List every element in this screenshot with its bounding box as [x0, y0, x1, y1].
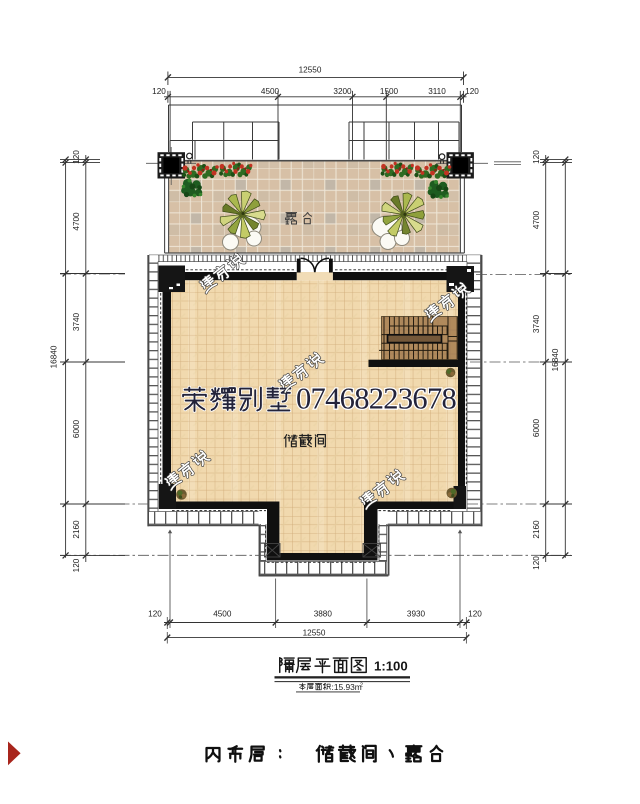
svg-text:3740: 3740: [532, 314, 541, 333]
svg-text:3200: 3200: [333, 87, 352, 96]
svg-text:2160: 2160: [532, 520, 541, 539]
svg-text:6000: 6000: [532, 418, 541, 437]
svg-text:120: 120: [468, 610, 482, 619]
svg-text:12550: 12550: [303, 629, 326, 638]
svg-text:120: 120: [72, 558, 81, 572]
svg-text:16840: 16840: [551, 348, 560, 371]
svg-text:120: 120: [532, 556, 541, 570]
svg-text:1500: 1500: [380, 87, 399, 96]
svg-text:16840: 16840: [50, 345, 59, 368]
svg-text:4500: 4500: [261, 87, 280, 96]
svg-text:120: 120: [148, 610, 162, 619]
svg-text:1:100: 1:100: [374, 659, 408, 674]
svg-text:120: 120: [152, 87, 166, 96]
svg-text:3880: 3880: [314, 610, 333, 619]
svg-text:120: 120: [72, 150, 81, 164]
svg-text:4500: 4500: [213, 610, 232, 619]
svg-text:3740: 3740: [72, 312, 81, 331]
svg-text:3930: 3930: [407, 610, 426, 619]
svg-text:12550: 12550: [299, 66, 322, 75]
svg-text:2: 2: [360, 683, 363, 689]
svg-text:120: 120: [465, 87, 479, 96]
svg-text:4700: 4700: [532, 210, 541, 229]
svg-text:4700: 4700: [72, 212, 81, 231]
svg-text:3110: 3110: [428, 87, 446, 96]
svg-text:6000: 6000: [72, 419, 81, 438]
svg-text:120: 120: [532, 150, 541, 164]
svg-text:2160: 2160: [72, 520, 81, 539]
svg-text:07468223678: 07468223678: [296, 382, 457, 416]
svg-text::15.93m: :15.93m: [332, 682, 362, 692]
